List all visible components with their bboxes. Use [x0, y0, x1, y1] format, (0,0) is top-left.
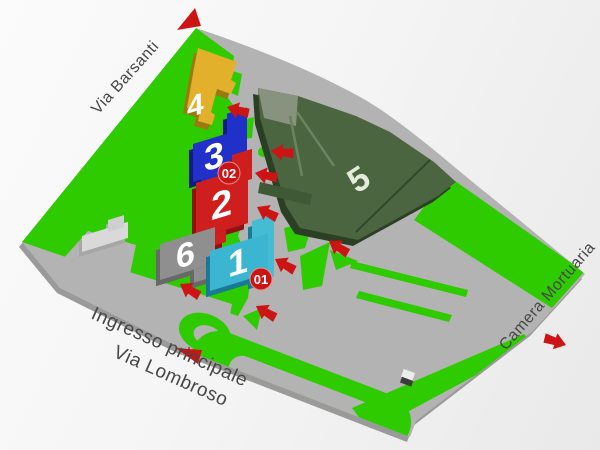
badge-01[interactable]: 01 — [250, 268, 272, 290]
mortuary-arrow-icon — [541, 330, 568, 353]
building-6-number: 6 — [176, 234, 195, 277]
building-4-number: 4 — [187, 86, 204, 125]
building-1-number: 1 — [228, 239, 248, 285]
svg-text:02: 02 — [222, 166, 236, 181]
map-stage: 5 4 3 2 6 — [0, 0, 600, 450]
badge-02[interactable]: 02 — [218, 162, 240, 184]
entrance-arrow-north-icon — [177, 8, 201, 30]
campus-map: 5 4 3 2 6 — [0, 0, 600, 450]
building-2-number: 2 — [211, 181, 232, 229]
svg-text:01: 01 — [254, 272, 268, 287]
